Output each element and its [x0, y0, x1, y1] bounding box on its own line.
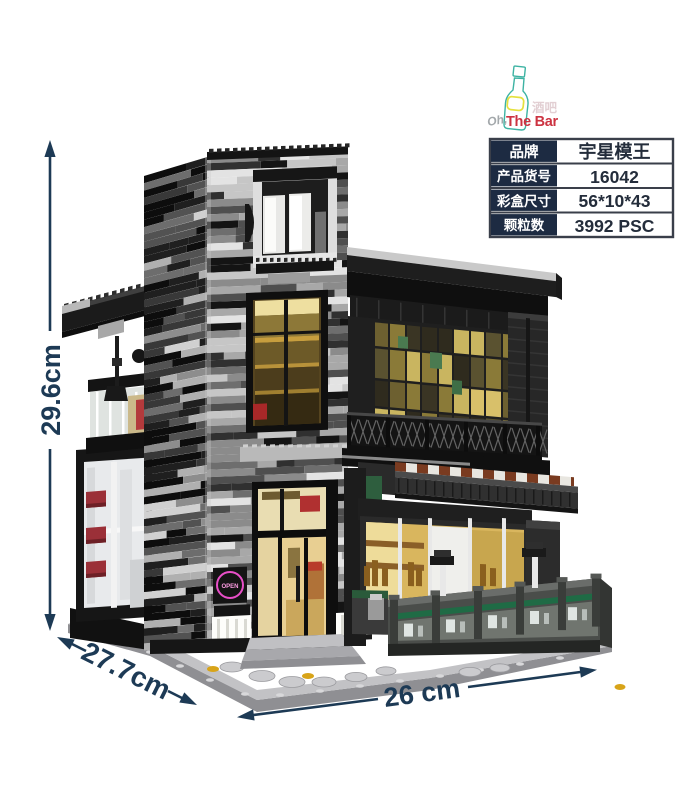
svg-text:彩盒尺寸: 彩盒尺寸 — [496, 193, 551, 209]
svg-text:56*10*43: 56*10*43 — [578, 191, 650, 211]
svg-text:品牌: 品牌 — [510, 143, 539, 161]
svg-text:产品货号: 产品货号 — [497, 168, 551, 184]
svg-text:3992 PSC: 3992 PSC — [575, 216, 655, 236]
svg-text:OPEN: OPEN — [221, 584, 238, 590]
svg-text:酒吧: 酒吧 — [532, 101, 558, 115]
svg-text:颗粒数: 颗粒数 — [504, 217, 545, 233]
svg-text:16042: 16042 — [590, 167, 639, 187]
svg-text:The Bar: The Bar — [506, 114, 559, 130]
svg-text:宇星模王: 宇星模王 — [579, 141, 651, 162]
svg-text:29.6cm: 29.6cm — [36, 344, 66, 436]
